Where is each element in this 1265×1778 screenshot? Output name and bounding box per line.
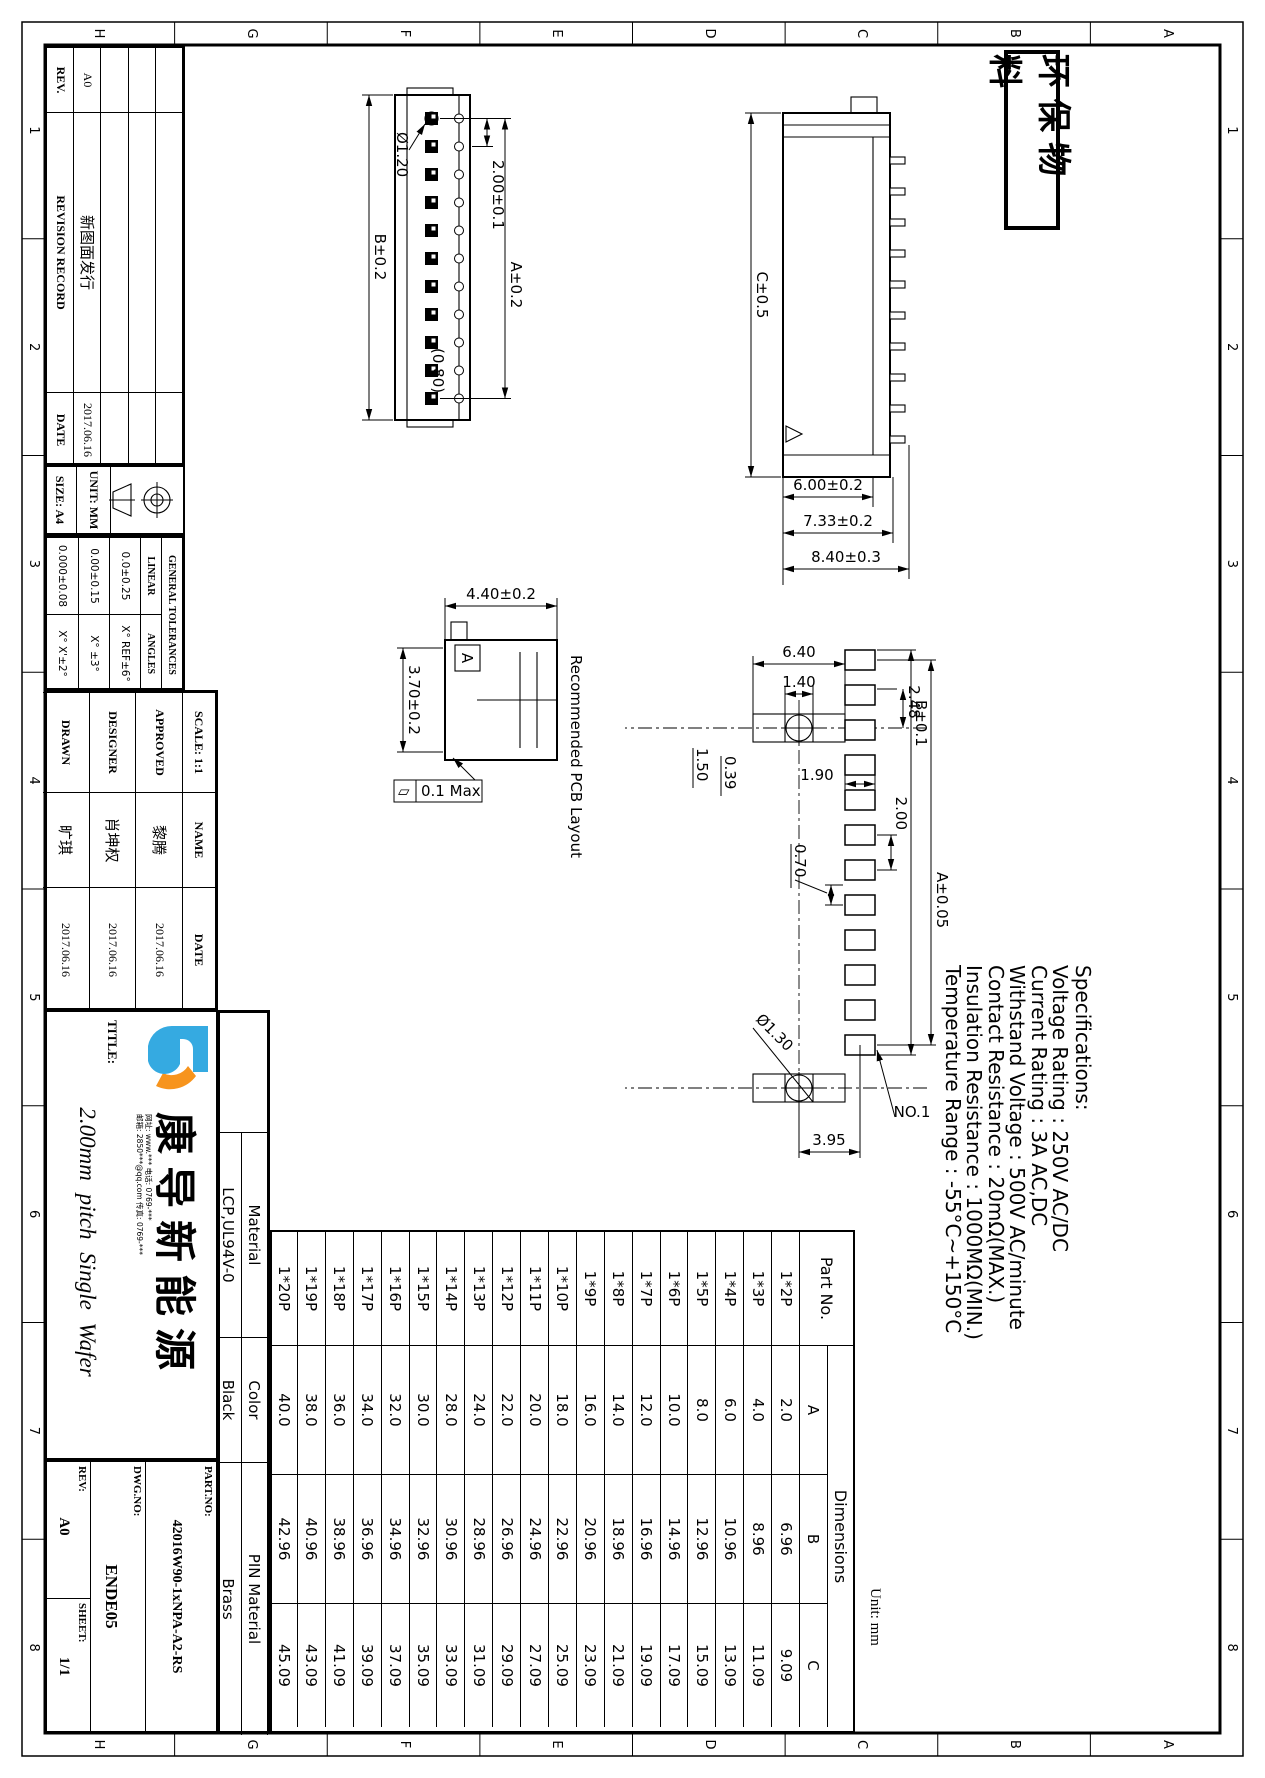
scale-cell: SCALE: 1:1 <box>183 692 216 792</box>
revision-rev-value: A0 <box>74 47 101 112</box>
zone-letter-right: H <box>89 1737 107 1753</box>
name-header: NAME <box>183 792 216 887</box>
linear-tol-2: 0.00±0.15 <box>79 537 110 614</box>
approved-name: 黎腾 <box>136 792 183 887</box>
dim-070-label: 0.70 <box>791 844 809 877</box>
part-dim-value: 22.0 <box>493 1345 521 1474</box>
landscape-sheet: B±0.2 A±0.2 2.00±0.1 Ø1.20 (0.80) <box>0 0 1265 1778</box>
part-dim-value: 20.96 <box>577 1474 605 1603</box>
pcb-pads <box>845 650 875 1055</box>
pcb-hole-label: Ø1.30 <box>752 1010 797 1055</box>
zone-letter-left: F <box>395 26 413 42</box>
end-view: A 4.40±0.2 3.70±0.2 ▱ 0.1 Max <box>394 585 557 802</box>
approved-date: 2017.06.16 <box>136 887 183 1012</box>
part-dim-value: 6.0 <box>716 1345 744 1474</box>
zone-number-top: 4 <box>1223 773 1241 789</box>
part-number: 1*14P <box>437 1232 465 1345</box>
col-header-b: B <box>800 1474 828 1603</box>
tolerances-title: GENERAL TOLERANCES <box>162 537 183 692</box>
revision-record-header: REVISION RECORD <box>47 112 74 392</box>
revision-date-value: 2017.06.16 <box>74 392 101 467</box>
part-dim-value: 12.96 <box>688 1474 716 1603</box>
dim-140-label: 1.40 <box>782 673 815 691</box>
rev-empty <box>101 47 128 112</box>
side-view-pins <box>890 157 905 443</box>
part-number: 1*11P <box>521 1232 549 1345</box>
part-dim-value: 38.96 <box>326 1474 354 1603</box>
rev-empty <box>101 392 128 467</box>
part-dim-value: 17.09 <box>661 1603 689 1727</box>
part-dim-value: 20.0 <box>521 1345 549 1474</box>
part-dim-value: 12.0 <box>633 1345 661 1474</box>
dim-395-label: 3.95 <box>812 1131 845 1149</box>
zone-letter-right: D <box>700 1737 718 1753</box>
revision-date-header: DATE <box>47 392 74 467</box>
part-dim-value: 24.96 <box>521 1474 549 1603</box>
zone-letter-left: C <box>852 26 870 42</box>
zone-number-bottom: 1 <box>25 122 43 138</box>
part-number: 1*19P <box>298 1232 326 1345</box>
size-unit-block: UNIT: MM SIZE: A4 <box>45 465 185 535</box>
part-dim-value: 40.0 <box>270 1345 298 1474</box>
rev-label: REV: <box>76 1466 88 1492</box>
rev-empty <box>129 392 156 467</box>
part-dim-value: 29.09 <box>493 1603 521 1727</box>
rev-empty <box>156 392 183 467</box>
dim-c-label: C±0.5 <box>753 272 771 319</box>
part-dim-value: 23.09 <box>577 1603 605 1727</box>
material-strip-spacer <box>216 1012 268 1132</box>
part-dim-value: 32.96 <box>410 1474 438 1603</box>
part-dim-value: 41.09 <box>326 1603 354 1727</box>
spec-line: Contact Resistance : 20mΩ(MAX.) <box>985 965 1007 1445</box>
hole-dia-label: Ø1.20 <box>393 132 411 177</box>
part-dim-value: 16.0 <box>577 1345 605 1474</box>
rev-empty <box>101 112 128 392</box>
angle-tol-3: X° X'±2° <box>47 614 79 692</box>
part-dim-value: 34.96 <box>382 1474 410 1603</box>
title-label: TITLE: <box>104 1020 120 1064</box>
zone-number-top: 2 <box>1223 339 1241 355</box>
part-number: 1*20P <box>270 1232 298 1345</box>
part-number: 1*18P <box>326 1232 354 1345</box>
part-dim-value: 10.96 <box>716 1474 744 1603</box>
part-dim-value: 39.09 <box>354 1603 382 1727</box>
drawing-title: 2.00mm pitch Single Wafer <box>74 1032 100 1452</box>
part-dim-value: 42.96 <box>270 1474 298 1603</box>
part-number: 1*2P <box>772 1232 800 1345</box>
pin1-label: NO.1 <box>894 1103 931 1121</box>
part-dim-value: 24.0 <box>465 1345 493 1474</box>
revision-description: 新图面发行 <box>74 112 101 392</box>
dim-600-label: 6.00±0.2 <box>793 476 863 494</box>
zone-letter-left: H <box>89 26 107 42</box>
company-logo <box>132 1018 212 1110</box>
part-dim-value: 9.09 <box>772 1603 800 1727</box>
zone-number-top: 7 <box>1223 1423 1241 1439</box>
flatness-fcf: ▱ 0.1 Max <box>394 780 482 802</box>
part-dim-value: 13.09 <box>716 1603 744 1727</box>
dim-039-label: 0.39 <box>721 756 739 789</box>
zone-number-top: 5 <box>1223 989 1241 1005</box>
drawn-label: DRAWN <box>43 692 90 792</box>
part-dim-value: 25.09 <box>549 1603 577 1727</box>
pcb-layout: 6.40 1.40 2.48 1.50 0.39 1.90 2.00 <box>567 643 951 1158</box>
signoff-block: SCALE: 1:1 NAME DATE APPROVED 黎腾 2017.06… <box>45 690 218 1010</box>
part-number: 1*4P <box>716 1232 744 1345</box>
part-dim-value: 30.0 <box>410 1345 438 1474</box>
part-dim-value: 10.0 <box>661 1345 689 1474</box>
material-header: Material <box>242 1132 268 1337</box>
linear-tol-1: 0.0±0.25 <box>110 537 141 614</box>
logo-row: 康导新能源 网址: www.*** 电话: 0769-*** 邮箱: 2850*… <box>126 1012 216 1462</box>
part-dim-value: 14.96 <box>661 1474 689 1603</box>
zone-number-bottom: 3 <box>25 556 43 572</box>
dim-b-label: B±0.2 <box>371 234 389 281</box>
rev-empty <box>129 112 156 392</box>
side-view: C±0.5 6.00±0.2 7.33±0.2 8.40±0.3 <box>745 97 909 585</box>
part-number: 1*17P <box>354 1232 382 1345</box>
dwg-no-label: DWG.NO: <box>131 1466 143 1516</box>
pcb-dim-a-label: A±0.05 <box>933 872 951 928</box>
rev-empty <box>156 47 183 112</box>
pcb-layout-title: Recommended PCB Layout <box>567 655 585 858</box>
part-dim-value: 2.0 <box>772 1345 800 1474</box>
part-dim-value: 8.0 <box>688 1345 716 1474</box>
part-no-value: 42016W90-1xNPA-A2-RS <box>168 1462 184 1731</box>
color-value: Black <box>216 1337 242 1462</box>
spec-line: Current Rating : 3A AC,DC <box>1028 965 1050 1445</box>
part-dim-value: 30.96 <box>437 1474 465 1603</box>
part-dim-value: 18.0 <box>549 1345 577 1474</box>
part-dim-value: 18.96 <box>605 1474 633 1603</box>
scale-label: SCALE: <box>192 711 207 755</box>
zone-letter-left: D <box>700 26 718 42</box>
part-dim-value: 8.96 <box>744 1474 772 1603</box>
part-number: 1*5P <box>688 1232 716 1345</box>
zone-number-bottom: 6 <box>25 1206 43 1222</box>
zone-number-bottom: 2 <box>25 339 43 355</box>
part-number: 1*15P <box>410 1232 438 1345</box>
part-dim-value: 28.0 <box>437 1345 465 1474</box>
dim-640-label: 6.40 <box>782 643 815 661</box>
dim-a-label: A±0.2 <box>507 262 525 309</box>
dim-370-label: 3.70±0.2 <box>405 665 423 735</box>
specifications-block: Specifications: Voltage Rating : 250V AC… <box>942 965 1094 1445</box>
dwg-no-value: ENDE05 <box>101 1462 121 1731</box>
part-number: 1*6P <box>661 1232 689 1345</box>
part-dim-value: 38.0 <box>298 1345 326 1474</box>
revision-table: A0 新图面发行 2017.06.16 REV. REVISION RECORD… <box>45 45 185 465</box>
part-dim-value: 45.09 <box>270 1603 298 1727</box>
dim-440-label: 4.40±0.2 <box>466 585 536 603</box>
part-dim-value: 36.0 <box>326 1345 354 1474</box>
unit-note: Unit: mm <box>866 1588 883 1646</box>
section-a-label: A <box>458 653 476 664</box>
part-dim-value: 27.09 <box>521 1603 549 1727</box>
part-dim-value: 43.09 <box>298 1603 326 1727</box>
rev-empty <box>129 47 156 112</box>
zone-number-bottom: 7 <box>25 1423 43 1439</box>
parts-table-dimensions-header: Dimensions <box>828 1345 853 1727</box>
company-name: 康导新能源 <box>147 1112 208 1382</box>
part-dim-value: 35.09 <box>410 1603 438 1727</box>
part-dim-value: 31.09 <box>465 1603 493 1727</box>
part-number: 1*12P <box>493 1232 521 1345</box>
dim-200-label: 2.00 <box>892 797 910 830</box>
ref-dim-label: (0.80) <box>429 348 447 393</box>
material-strip: Material Color PIN Material LCP,UL94V-0 … <box>218 1010 270 1733</box>
zone-number-bottom: 5 <box>25 989 43 1005</box>
spec-line: Withstand Voltage : 500V AC/minute <box>1006 965 1028 1445</box>
designer-name: 肖坤权 <box>90 792 137 887</box>
pin-material-value: Brass <box>216 1462 242 1735</box>
pin-material-header: PIN Material <box>242 1462 268 1735</box>
designer-date: 2017.06.16 <box>90 887 137 1012</box>
color-header: Color <box>242 1337 268 1462</box>
flatness-value: 0.1 Max <box>421 782 481 800</box>
unit-label: UNIT: MM <box>77 467 111 533</box>
company-contact-line2: 邮箱: 2850***@qq.com 传真: 0769-*** <box>134 1114 145 1255</box>
specifications-lines: Voltage Rating : 250V AC/DCCurrent Ratin… <box>942 965 1071 1445</box>
drawn-name: 旷琪 <box>43 792 90 887</box>
angles-label: ANGLES <box>141 614 162 692</box>
part-dim-value: 36.96 <box>354 1474 382 1603</box>
sheet-value: 1/1 <box>55 1532 72 1778</box>
zone-letter-right: A <box>1158 1737 1176 1753</box>
eco-material-stamp-text: 环保物料 <box>983 54 1081 226</box>
part-number: 1*7P <box>633 1232 661 1345</box>
part-dim-value: 33.09 <box>437 1603 465 1727</box>
part-dim-value: 4.0 <box>744 1345 772 1474</box>
part-number: 1*3P <box>744 1232 772 1345</box>
part-number: 1*8P <box>605 1232 633 1345</box>
dim-840-label: 8.40±0.3 <box>811 548 881 566</box>
pitch-dim-label: 2.00±0.1 <box>489 160 507 230</box>
zone-letter-left: G <box>242 26 260 42</box>
tolerances-block: GENERAL TOLERANCES LINEAR ANGLES 0.0±0.2… <box>45 535 185 690</box>
part-dim-value: 6.96 <box>772 1474 800 1603</box>
zone-number-top: 8 <box>1223 1640 1241 1656</box>
part-dim-value: 22.96 <box>549 1474 577 1603</box>
designer-label: DESIGNER <box>90 692 137 792</box>
zone-letter-left: E <box>547 26 565 42</box>
zone-letter-right: E <box>547 1737 565 1753</box>
zone-number-top: 1 <box>1223 122 1241 138</box>
drawing-sheet-page: B±0.2 A±0.2 2.00±0.1 Ø1.20 (0.80) <box>0 0 1265 1778</box>
parts-table-partno-header: Part No. <box>800 1232 853 1345</box>
part-dim-value: 34.0 <box>354 1345 382 1474</box>
spec-line: Insulation Resistance : 1000MΩ(MIN.) <box>963 965 985 1445</box>
part-dim-value: 28.96 <box>465 1474 493 1603</box>
zone-number-top: 6 <box>1223 1206 1241 1222</box>
col-header-c: C <box>800 1603 828 1727</box>
polarity-mark <box>786 426 802 442</box>
zone-number-bottom: 8 <box>25 1640 43 1656</box>
part-dim-value: 11.09 <box>744 1603 772 1727</box>
front-view: B±0.2 A±0.2 2.00±0.1 Ø1.20 (0.80) <box>362 88 525 427</box>
dim-150-label: 1.50 <box>693 748 711 781</box>
material-value: LCP,UL94V-0 <box>216 1132 242 1337</box>
zone-letter-left: B <box>1005 26 1023 42</box>
partno-block: PART.NO: 42016W90-1xNPA-A2-RS DWG.NO: EN… <box>45 1460 218 1733</box>
specifications-title: Specifications: <box>1072 965 1094 1445</box>
part-number: 1*10P <box>549 1232 577 1345</box>
zone-number-bottom: 4 <box>25 773 43 789</box>
part-dim-value: 14.0 <box>605 1345 633 1474</box>
part-dim-value: 26.96 <box>493 1474 521 1603</box>
size-label: SIZE: A4 <box>43 467 77 533</box>
scale-value: 1:1 <box>192 758 207 774</box>
part-dim-value: 37.09 <box>382 1603 410 1727</box>
eco-material-stamp: 环保物料 <box>1004 50 1060 230</box>
dim-190-label: 1.90 <box>800 766 833 784</box>
zone-letter-right: C <box>852 1737 870 1753</box>
angle-tol-1: X° REF±6° <box>110 614 141 692</box>
spec-line: Voltage Rating : 250V AC/DC <box>1049 965 1071 1445</box>
dim-733-label: 7.33±0.2 <box>803 512 873 530</box>
part-no-label: PART.NO: <box>202 1466 214 1517</box>
drawn-date: 2017.06.16 <box>43 887 90 1012</box>
part-dim-value: 15.09 <box>688 1603 716 1727</box>
col-header-a: A <box>800 1345 828 1474</box>
part-dim-value: 40.96 <box>298 1474 326 1603</box>
parts-table: Part No. Dimensions A B C 1*2P2.06.969.0… <box>270 1230 855 1733</box>
pcb-dim-b-label: B±0.1 <box>912 700 930 747</box>
zone-letter-right: F <box>395 1737 413 1753</box>
zone-letter-left: A <box>1158 26 1176 42</box>
flatness-symbol: ▱ <box>398 782 410 800</box>
rev-empty <box>156 112 183 392</box>
part-dim-value: 32.0 <box>382 1345 410 1474</box>
linear-label: LINEAR <box>141 537 162 614</box>
spec-line: Temperature Range : -55°C~+150°C <box>942 965 964 1445</box>
sheet-label: SHEET: <box>76 1603 88 1643</box>
part-number: 1*9P <box>577 1232 605 1345</box>
part-dim-value: 16.96 <box>633 1474 661 1603</box>
approved-label: APPROVED <box>136 692 183 792</box>
zone-letter-right: B <box>1005 1737 1023 1753</box>
linear-tol-3: 0.000±0.08 <box>47 537 79 614</box>
date-header: DATE <box>183 887 216 1012</box>
part-number: 1*16P <box>382 1232 410 1345</box>
part-dim-value: 21.09 <box>605 1603 633 1727</box>
revision-rev-header: REV. <box>47 47 74 112</box>
zone-letter-right: G <box>242 1737 260 1753</box>
part-dim-value: 19.09 <box>633 1603 661 1727</box>
part-number: 1*13P <box>465 1232 493 1345</box>
zone-number-top: 3 <box>1223 556 1241 572</box>
angle-tol-2: X° ±3° <box>79 614 110 692</box>
